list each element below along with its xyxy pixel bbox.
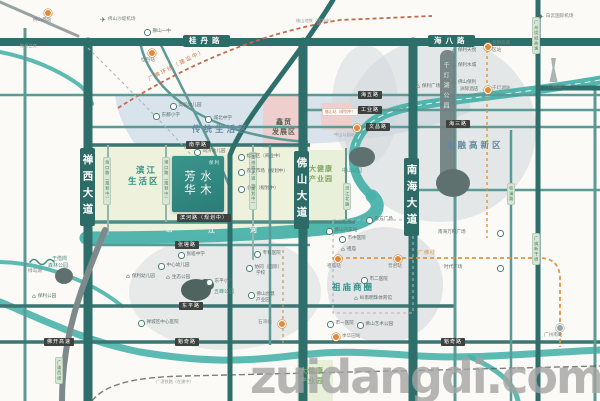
label-text: 保利水城 [458, 64, 476, 69]
map-label-实验幼儿园: 实验幼儿园 [170, 103, 201, 110]
label-text: 桂丹立交 [20, 44, 37, 48]
map-label-广珠西线: 广珠西线 [55, 357, 63, 384]
label-text: 佛山保利 [458, 81, 476, 86]
label-text: 保利天悦 [458, 49, 476, 54]
map-label-桂丹站: 桂丹站 [141, 59, 155, 64]
bldg-icon: ⌂ [416, 84, 420, 90]
label-text: 城北中学 [214, 117, 232, 122]
map-label-广州南站: 广州南站 [544, 334, 562, 339]
qiandeng-lake-station-icon [484, 86, 492, 94]
label-text: 广州绕城高速 [534, 20, 538, 51]
label-text: 中山公园 [342, 169, 362, 174]
label-text: 市二医院 [370, 278, 388, 283]
map-label-佛山地铁（规划中）: 佛山地铁（规划中） [296, 19, 334, 23]
map-label-广佛新干线: 广佛新干线 [532, 233, 540, 265]
map-label-中山公园站: 中山公园站 [334, 133, 355, 137]
map-label-广佛线: 广佛线 [418, 251, 436, 256]
map-label-佛山站（规划中）: 佛山站（规划中） [322, 108, 358, 116]
zumiao-metro-icon [334, 255, 342, 263]
label-text: 产业园 [256, 299, 270, 304]
station-icon [484, 86, 492, 94]
map-label-广州绕城高速: 广州绕城高速 [532, 17, 540, 54]
map-label-学校: 学校 [256, 272, 265, 277]
bldg-icon: ⌂ [166, 275, 170, 281]
label-text: 海八路 [434, 37, 469, 45]
plane-icon: ✈ [538, 14, 544, 21]
map-label-季华园站: 季华园站 [332, 333, 360, 341]
map-label-禅城区中心医院: 禅城区中心医院 [138, 320, 179, 327]
label-text: 海口路（规划中） [105, 160, 109, 202]
map-label-滨江: 滨江 [136, 167, 157, 176]
map-label-生态公园: ⌂生态公园 [166, 275, 190, 281]
label-text: 佛山艺术公园 [366, 323, 394, 328]
label-text: 东平小学 [215, 280, 233, 285]
circ-icon [170, 103, 177, 110]
map-label-产业园: 产业园 [256, 299, 270, 304]
label-text: 海三路 [449, 122, 467, 127]
map-label-专科医院: 专科医院 [254, 251, 281, 258]
bldg-icon: ⌂ [32, 294, 36, 300]
label-text: 季华园站 [342, 335, 360, 340]
label-text: 汾 [166, 226, 173, 233]
label-text: 洲际酒店 [460, 88, 478, 93]
label-text: 大健康 [309, 166, 333, 173]
map-label-保利水城: ⌂保利水城 [452, 63, 476, 69]
station-icon [278, 320, 286, 328]
label-text: 石湾站 [258, 321, 272, 326]
label-text: 佛山西站 [33, 19, 51, 24]
circ-icon [205, 116, 212, 123]
circ-icon [339, 236, 346, 243]
label-text: 广州塔 [548, 86, 562, 91]
bldg-icon: ⌂ [452, 48, 456, 54]
map-label-产业园: 产业园 [309, 176, 333, 183]
map-label-市一医院: 市一医院 [327, 321, 354, 328]
circ-icon [238, 169, 245, 176]
map-label-港口路（规划中）: 港口路（规划中） [162, 157, 170, 205]
logo-brand: 保利 [209, 160, 220, 166]
map-label-佛山保利: ⌂佛山保利 [452, 80, 476, 86]
circ-icon [497, 265, 504, 272]
label-text: 汾江北路 [345, 186, 349, 207]
circ-icon [158, 263, 165, 270]
map-label-桂丹路: 桂丹路 [183, 35, 230, 47]
map-label-大健康: 大健康 [309, 166, 333, 173]
circ-icon [366, 217, 373, 224]
map-label-鑫贸: 鑫贸 [276, 119, 292, 126]
map-label-时代广场: 时代广场 [444, 266, 462, 271]
label-text: 金融高新 [492, 42, 510, 47]
label-text: 千灯湖公园 [442, 62, 448, 112]
map-label-工业路: 工业路 [358, 106, 382, 114]
station-icon [394, 255, 402, 263]
label-text: 森林公园 [48, 264, 68, 269]
label-text: 南海万科广场 [438, 231, 466, 236]
map-label-滨河路（规划中）: 滨河路（规划中） [177, 214, 231, 222]
map-label-洲际酒店: 洲际酒店 [460, 88, 478, 93]
label-text: 生活区 [128, 178, 160, 187]
map-label-广湛铁路（在建中）: 广湛铁路（在建中） [156, 380, 194, 384]
label-text: 东方广场 [375, 218, 393, 223]
label-text: 港口路（规划中） [164, 160, 168, 202]
label-text: 普君站 [388, 265, 402, 270]
label-text: 狮山一中 [153, 30, 171, 35]
label-text: 广佛线 [418, 251, 436, 256]
label-text: 张槎路 [178, 243, 196, 248]
map-label-魁奇路: 魁奇路 [441, 338, 465, 346]
label-text: 同济幼儿园 [203, 150, 226, 155]
map-label-保利广场: ⌂保利广场 [416, 84, 440, 90]
label-text: 滨河路（规划中） [180, 216, 228, 221]
map-label-传统生活区: 传统生活区 [192, 126, 250, 135]
map-label-市中医院: 市中医院 [339, 236, 366, 243]
label-text: 滨江 [136, 167, 157, 176]
map-label-东鄱小学: 东鄱小学 [153, 113, 180, 120]
station-icon [353, 124, 361, 132]
bldg-icon: ⌂ [341, 247, 345, 253]
label-text: 佛山地铁（规划中） [296, 19, 334, 23]
map-label-海三路: 海三路 [446, 120, 470, 128]
label-text: 海五路 [361, 93, 379, 98]
map-label-区站: 区站 [492, 49, 501, 54]
label-text: 东鄱小学 [162, 114, 180, 119]
label-text: 市中医院 [348, 237, 366, 242]
label-text: 南海大道 [406, 164, 417, 230]
map-label-五峰公园: 五峰公园 [214, 290, 234, 295]
map-label-狮山一中: 狮山一中 [144, 29, 171, 36]
label-text: 学校 [256, 272, 265, 277]
map-label-王借岗大道（规划中）: 王借岗大道（规划中） [249, 152, 257, 210]
map-label-千灯湖站: 千灯湖站 [492, 87, 510, 92]
station-icon [484, 43, 492, 51]
circ-icon [206, 279, 213, 286]
label-text: 生态公园 [172, 276, 190, 281]
label-text: 广州南站 [544, 334, 562, 339]
shiwan-station-icon [278, 320, 286, 328]
label-text: 区站 [492, 49, 501, 54]
map-label-农贸市场（规划中）: 农贸市场（规划中） [238, 169, 288, 176]
label-text: 江 [208, 227, 215, 234]
map-label-白云国际机场: ✈白云国际机场 [538, 14, 573, 21]
label-text: 桂澜路 [509, 186, 513, 202]
label-text: 广珠西线 [57, 360, 61, 381]
map-label-森林公园: 森林公园 [48, 264, 68, 269]
guangzhou-south-icon [556, 324, 564, 332]
map-label-佛山汽车站: 佛山汽车站 [326, 228, 357, 235]
label-text: 禅西大道 [82, 154, 93, 220]
guidan-station-icon [148, 49, 156, 57]
label-text: 广湛铁路（在建中） [156, 380, 194, 384]
label-text: 佛山大道 [296, 157, 307, 223]
map-label-海口路（规划中）: 海口路（规划中） [103, 157, 111, 205]
map-label-东方广场: 东方广场 [366, 217, 393, 224]
label-text: 佛山创意 [257, 293, 275, 298]
label-text: 传统生活区 [192, 126, 250, 135]
map-label-张槎中学: 张槎中学 [178, 252, 205, 259]
map-label-海五路: 海五路 [358, 91, 382, 99]
label-text: 时代广场 [444, 266, 462, 271]
label-text: 实验幼儿园 [179, 104, 202, 109]
label-text: 东平路 [182, 304, 200, 309]
plane-icon: ✈ [100, 17, 106, 24]
logo-name: 水木芳华 [182, 170, 214, 198]
circ-icon [254, 251, 261, 258]
map-label-佛山沙堤机场: ✈佛山沙堤机场 [100, 17, 135, 24]
label-text: 专科医院 [263, 252, 281, 257]
label-text: 广佛新干线 [534, 236, 538, 262]
label-text: 佛山沙堤机场 [108, 18, 136, 23]
label-text: 农贸市场（规划中） [247, 170, 288, 175]
map-label-同济幼儿园: 同济幼儿园 [194, 149, 225, 156]
map-label-祖庙商圈: 祖庙商圈 [332, 284, 374, 293]
station-icon [332, 333, 340, 341]
circ-icon [326, 228, 333, 235]
map-label-中山公园: 中山公园 [342, 169, 362, 174]
label-text: 工业路 [361, 108, 379, 113]
label-text: 张槎中学 [187, 253, 205, 258]
zhongshan-park-station-icon [353, 124, 361, 132]
station-icon [334, 255, 342, 263]
site-watermark: zuidangdi.com [250, 350, 600, 401]
qiandeng-lake-park-label: 千灯湖公园 [442, 62, 448, 112]
label-text: 松园区（商业中） [247, 155, 284, 160]
map-label-佛山艺术公园: 佛山艺术公园 [357, 322, 393, 329]
map-label-岭南明珠体育馆: ⌂岭南明珠体育馆 [354, 296, 392, 302]
circ-icon [153, 113, 160, 120]
label-text: 中心幼儿园 [167, 264, 190, 269]
label-text: 佛山站（规划中） [325, 110, 355, 114]
map-label-王借岗: 王借岗 [52, 257, 67, 262]
label-text: 产业园 [309, 176, 333, 183]
label-text: 祖庙站 [327, 265, 341, 270]
times-plaza-icon [497, 265, 504, 272]
label-text: 金融高新区 [446, 142, 504, 151]
label-text: 保利幼儿园 [132, 275, 155, 280]
map-label-小学（规划中）: 小学（规划中） [238, 186, 279, 193]
circ-icon [248, 292, 255, 299]
map-label-佛开高速: 佛开高速 [44, 338, 74, 346]
label-text: 佛山汽车站 [335, 229, 358, 234]
bldg-icon: ⌂ [126, 274, 130, 280]
label-text: 中山公园站 [334, 133, 355, 137]
circ-icon [138, 320, 145, 327]
label-text: 祖庙商圈 [332, 284, 374, 293]
circ-icon [246, 265, 253, 272]
label-text: 桂丹站 [141, 59, 155, 64]
map-label-广州塔: 广州塔 [548, 86, 562, 91]
circ-icon [238, 186, 245, 193]
label-text: 岭南明珠体育馆 [360, 297, 392, 302]
label-text: 小学（规划中） [247, 187, 279, 192]
map-label-张槎路: 张槎路 [175, 241, 199, 249]
label-text: 王借岗 [52, 257, 67, 262]
label-text: 魁奇路 [444, 340, 462, 345]
bldg-icon: ⌂ [452, 80, 456, 86]
circ-icon [497, 230, 504, 237]
map-label-发展区: 发展区 [272, 129, 296, 136]
label-text: 千灯湖站 [492, 87, 510, 92]
label-text: 保利公园 [38, 295, 56, 300]
map-label-中心幼儿园: 中心幼儿园 [158, 263, 189, 270]
circ-icon [194, 149, 201, 156]
label-text: 绿岛湖 [28, 270, 42, 275]
label-text: 佛开高速 [47, 340, 71, 345]
label-text: 协同（国际） [255, 266, 283, 271]
financial-hitech-station-icon [484, 43, 492, 51]
bldg-icon: ⌂ [452, 63, 456, 69]
train-icon [556, 324, 564, 332]
foshan-west-station-icon [44, 9, 52, 17]
label-text: 祖庙 [347, 248, 356, 253]
map-label-江: 江 [208, 227, 215, 234]
map-label-绿岛湖: 绿岛湖 [28, 270, 42, 275]
label-text: 桂丹路 [189, 37, 224, 45]
map-label-河: 河 [250, 227, 257, 234]
map-label-海八路: 海八路 [428, 35, 475, 47]
map-label-祖庙站: 祖庙站 [327, 265, 341, 270]
circ-icon [144, 29, 151, 36]
map-label-石湾站: 石湾站 [258, 321, 272, 326]
map-label-南学路: 南学路 [186, 141, 210, 149]
map-label-金融高新: 金融高新 [492, 42, 510, 47]
map-label-祖庙: ⌂祖庙 [341, 247, 356, 253]
map-label-桂丹立交: 桂丹立交 [20, 44, 37, 48]
project-logo: 保利 水木芳华 [172, 156, 224, 212]
location-map-image[interactable]: 保利 水木芳华 桂丹路海八路禅西大道佛山大道南海大道南学路滨河路（规划中）张槎路… [0, 0, 600, 401]
map-label-城北中学: 城北中学 [205, 116, 232, 123]
map-label-文昌路: 文昌路 [366, 123, 390, 131]
label-text: 魁奇路 [178, 340, 196, 345]
label-text: 鑫贸 [276, 119, 292, 126]
label-text: 王借岗大道（规划中） [251, 155, 255, 207]
map-label-保利公园: ⌂保利公园 [32, 294, 56, 300]
label-text: 市一医院 [336, 322, 354, 327]
map-label-松园区（商业中）: 松园区（商业中） [238, 154, 283, 161]
map-label-汾江北路: 汾江北路 [343, 183, 351, 210]
map-label-汾: 汾 [166, 226, 173, 233]
map-label-生活区: 生活区 [128, 178, 160, 187]
map-label-保利天悦: ⌂保利天悦 [452, 48, 476, 54]
map-label-保利幼儿园: ⌂保利幼儿园 [126, 274, 155, 280]
map-label-魁奇路: 魁奇路 [175, 338, 199, 346]
circ-icon [178, 252, 185, 259]
map-label-南海万科广场: 南海万科广场 [438, 231, 466, 236]
map-label-佛山大道: 佛山大道 [294, 151, 309, 229]
label-text: 南学路 [189, 143, 207, 148]
map-label-普君站: 普君站 [388, 265, 402, 270]
label-text: 文昌路 [369, 125, 387, 130]
map-label-禅西大道: 禅西大道 [80, 148, 95, 226]
label-text: 白云国际机场 [546, 15, 574, 20]
circ-icon [238, 154, 245, 161]
circ-icon [327, 321, 334, 328]
map-label-金融高新区: 金融高新区 [446, 142, 504, 151]
map-label-佛山西站: 佛山西站 [33, 19, 51, 24]
station-icon [148, 49, 156, 57]
station-icon [44, 9, 52, 17]
label-text: 五峰公园 [214, 290, 234, 295]
circ-icon [357, 322, 364, 329]
pujun-metro-icon [394, 255, 402, 263]
label-text: 河 [250, 227, 257, 234]
wanke-plaza-icon [497, 230, 504, 237]
map-label-南海大道: 南海大道 [404, 158, 419, 236]
bldg-icon: ⌂ [354, 296, 358, 302]
map-label-东平路: 东平路 [179, 302, 203, 310]
label-text: 发展区 [272, 129, 296, 136]
map-label-东平小学: 东平小学 [206, 279, 233, 286]
label-text: 禅城区中心医院 [147, 321, 179, 326]
map-label-桂澜路: 桂澜路 [507, 183, 515, 205]
label-text: 保利广场 [422, 85, 440, 90]
